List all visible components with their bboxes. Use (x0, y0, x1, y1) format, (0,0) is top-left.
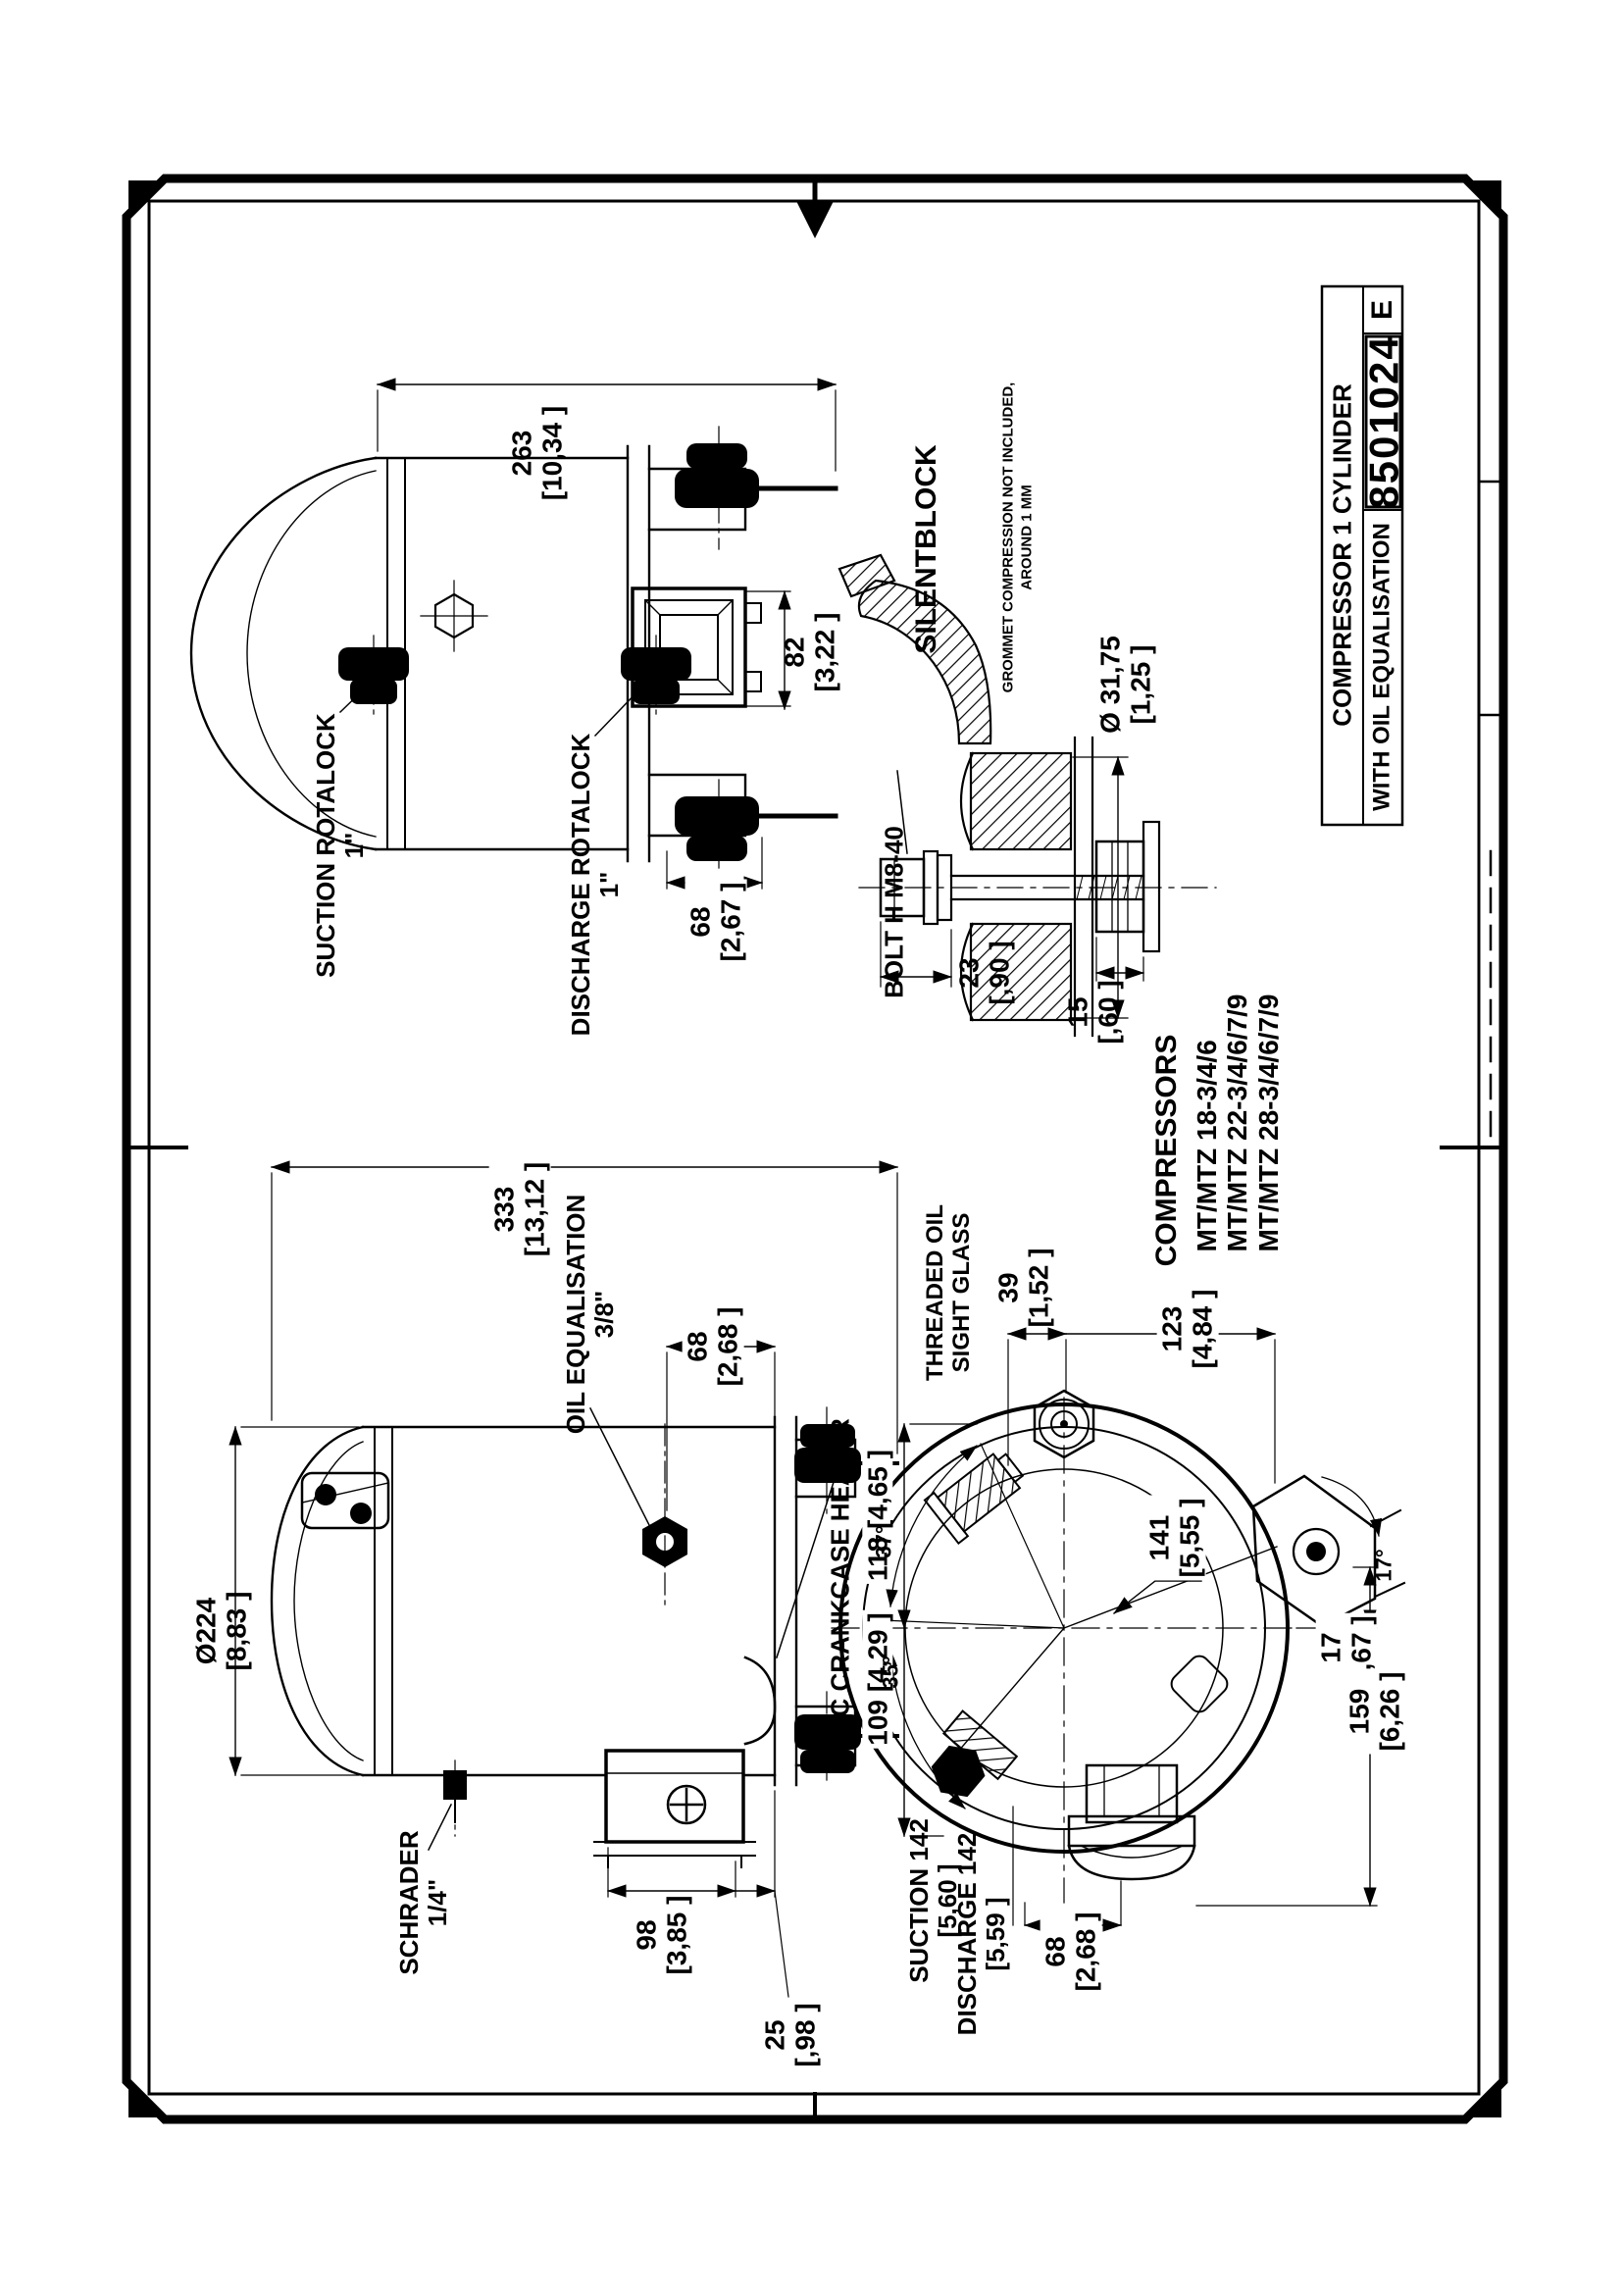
model-row: MT/MTZ 22-3/4/6/7/9 (1222, 994, 1252, 1252)
dim-15: 15[,60 ] (1063, 980, 1125, 1044)
dim-333: 333[13,12 ] (489, 1159, 551, 1260)
angle-37: 37° (873, 1525, 897, 1557)
dim-25: 25[,98 ] (760, 2003, 822, 2066)
dim-68-front: 68[2,68 ] (683, 1304, 744, 1390)
center-mark-icon (796, 201, 834, 238)
dim-159: 159[6,26 ] (1345, 1669, 1406, 1755)
dim-118: 118 [4,65 ] (862, 1447, 892, 1584)
oil-equalisation-label: OIL EQUALISATION3/8" (562, 1195, 619, 1435)
bolt-label: BOLT H M8-40 (880, 826, 908, 998)
revision-letter: E (1366, 300, 1399, 320)
dim-123: 123[4,84 ] (1157, 1287, 1219, 1372)
drawing-sheet: COMPRESSOR 1 CYLINDER WITH OIL EQUALISAT… (0, 0, 1624, 2294)
title-block-subtitle: WITH OIL EQUALISATION (1370, 523, 1396, 811)
suction-rotalock-label: SUCTION ROTALOCK1" (312, 713, 369, 978)
crankcase-heater-label: PTC CRANKCASE HEATER (826, 1418, 854, 1750)
grommet-note: GROMMET COMPRESSION NOT INCLUDED,AROUND … (999, 382, 1037, 693)
corner-chamfer-icon (1465, 2081, 1501, 2117)
dim-68-side: 68[2,67 ] (685, 880, 747, 965)
title-block-title: COMPRESSOR 1 CYLINDER (1328, 383, 1356, 727)
discharge-port-label: DISCHARGE 142[5,59 ] (953, 1833, 1010, 2036)
schrader-label: SCHRADER1/4" (395, 1830, 452, 1974)
dim-shell-dia: Ø224[8,83 ] (191, 1592, 253, 1671)
silentblock-title: SILENTBLOCK (910, 444, 943, 653)
corner-chamfer-icon (128, 180, 165, 217)
dim-141: 141[5,55 ] (1144, 1496, 1206, 1581)
dim-23: 23[,90 ] (954, 941, 1016, 1004)
dim-263: 263[10,34 ] (507, 406, 569, 501)
dim-39: 39[1,52 ] (993, 1249, 1055, 1328)
discharge-rotalock-label: DISCHARGE ROTALOCK1" (567, 734, 624, 1037)
compressors-heading: COMPRESSORS (1150, 1035, 1184, 1267)
suction-stub-icon (913, 1711, 1016, 1815)
dim-grommet-dia: Ø 31,75[1,25 ] (1095, 636, 1157, 734)
dim-68-stub: 68[2,68 ] (1040, 1910, 1102, 1995)
compressors-models: MT/MTZ 18-3/4/6 MT/MTZ 22-3/4/6/7/9 MT/M… (1192, 994, 1284, 1252)
sight-glass-label: THREADED OILSIGHT GLASS (923, 1204, 976, 1381)
drawing-number: 8501024 (1360, 334, 1406, 509)
model-row: MT/MTZ 18-3/4/6 (1192, 994, 1222, 1252)
dim-98: 98[3,85 ] (632, 1896, 693, 1975)
angle-17: 17° (1373, 1549, 1397, 1581)
model-row: MT/MTZ 28-3/4/6/7/9 (1253, 994, 1284, 1252)
dim-82: 82[3,22 ] (780, 613, 841, 692)
angle-35: 35° (880, 1656, 904, 1688)
